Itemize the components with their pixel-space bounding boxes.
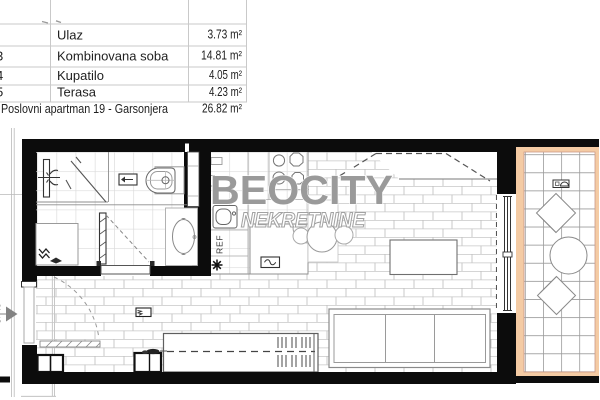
svg-text:Kombinovana soba: Kombinovana soba bbox=[57, 49, 169, 64]
svg-text:3: 3 bbox=[0, 49, 3, 64]
svg-text:Poslovni apartman 19 - Garsonj: Poslovni apartman 19 - Garsonjera bbox=[1, 101, 169, 116]
svg-text:Kupatilo: Kupatilo bbox=[57, 68, 104, 83]
svg-text:4.23 m²: 4.23 m² bbox=[209, 84, 242, 99]
svg-text:4: 4 bbox=[0, 68, 3, 83]
svg-text:26.82 m²: 26.82 m² bbox=[202, 101, 243, 116]
svg-text:Terasa: Terasa bbox=[57, 85, 97, 100]
svg-text:4.05 m²: 4.05 m² bbox=[209, 67, 242, 82]
svg-text:3.73 m²: 3.73 m² bbox=[208, 27, 243, 42]
svg-text:NEKRETNINE: NEKRETNINE bbox=[241, 209, 366, 232]
svg-text:BEOCITY: BEOCITY bbox=[210, 167, 393, 213]
svg-text:Ulaz: Ulaz bbox=[57, 28, 83, 43]
svg-text:REF: REF bbox=[215, 235, 225, 254]
svg-text:5: 5 bbox=[0, 85, 3, 100]
svg-text:14.81 m²: 14.81 m² bbox=[201, 48, 243, 63]
